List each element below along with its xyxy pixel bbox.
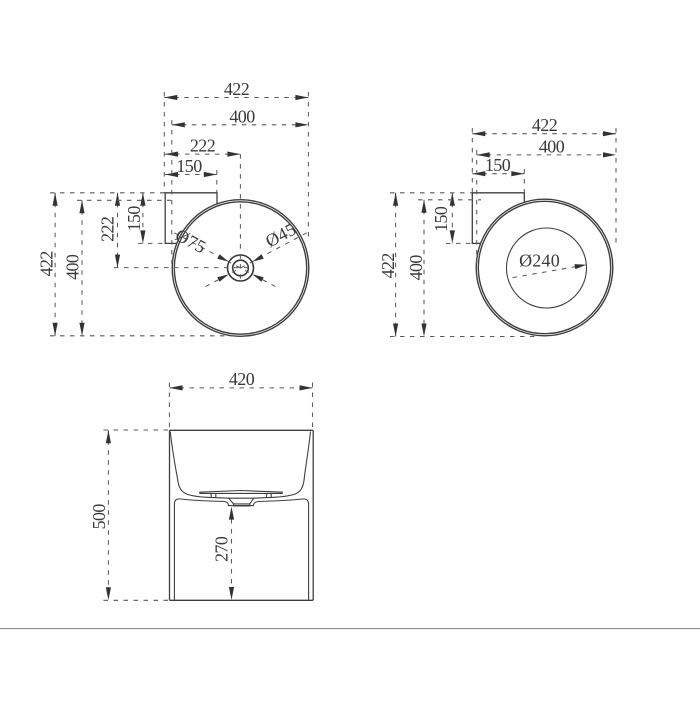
- svg-text:270: 270: [212, 536, 232, 562]
- svg-text:400: 400: [539, 136, 565, 156]
- svg-text:500: 500: [89, 504, 109, 530]
- svg-text:Ø240: Ø240: [519, 251, 560, 271]
- svg-text:222: 222: [97, 217, 117, 242]
- svg-text:150: 150: [176, 156, 202, 176]
- svg-text:400: 400: [229, 106, 255, 126]
- svg-text:422: 422: [378, 253, 398, 278]
- svg-text:222: 222: [190, 136, 215, 156]
- svg-text:150: 150: [124, 206, 144, 232]
- svg-text:400: 400: [406, 255, 426, 281]
- svg-text:400: 400: [63, 254, 83, 280]
- svg-text:422: 422: [37, 251, 57, 276]
- svg-text:150: 150: [431, 206, 451, 232]
- svg-text:420: 420: [229, 369, 255, 389]
- svg-text:422: 422: [224, 79, 249, 99]
- svg-text:422: 422: [532, 115, 557, 135]
- svg-text:150: 150: [485, 155, 511, 175]
